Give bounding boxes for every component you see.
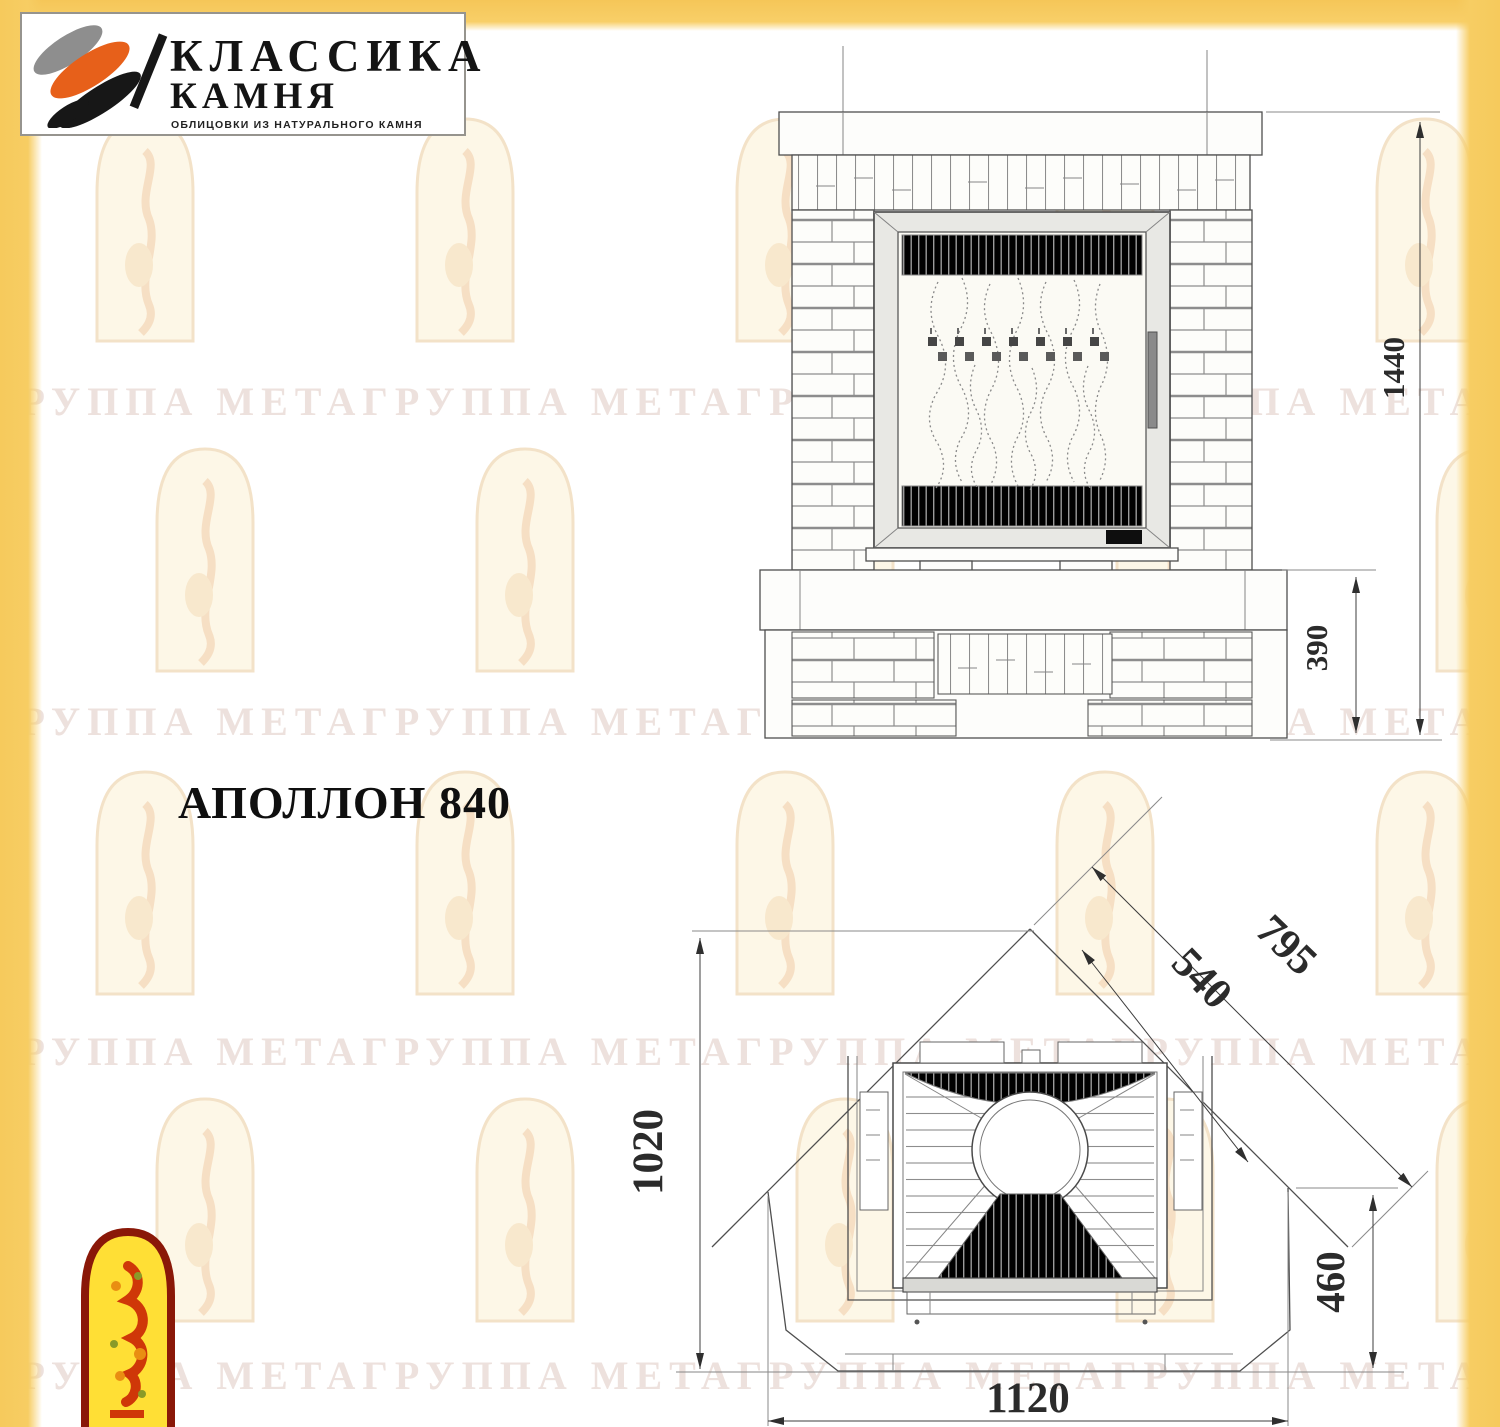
plan-view-drawing [676,929,1404,1372]
frieze-tiles [792,155,1250,210]
dim-label-540: 540 [1162,939,1241,1018]
dim-label-1120: 1120 [986,1375,1070,1422]
base-pedestal [765,630,1287,738]
logo-brushstroke-icon [28,22,168,128]
brand-badge [1106,530,1142,544]
side-bracket-right [1174,1092,1202,1210]
flue-collar-outer [972,1092,1088,1208]
dim-label-390: 390 [1299,625,1334,672]
brand-name-line2: КАМНЯ [170,78,339,115]
dim-label-795: 795 [1247,906,1326,985]
technical-drawing: 1440 390 1020 795 540 460 1120 [0,0,1500,1427]
mantel-shelf [779,112,1262,155]
rear-tab [920,1042,1004,1063]
bottom-grille [902,486,1142,526]
firebox-ledge [866,548,1178,561]
front-step-plan [907,1292,1155,1325]
firebox-front [874,212,1170,548]
front-view-drawing [760,46,1287,738]
door-handle [1148,332,1157,428]
brand-tagline: ОБЛИЦОВКИ ИЗ НАТУРАЛЬНОГО КАМНЯ [171,119,423,131]
right-brick-column [1170,210,1252,570]
front-sill-band [903,1278,1157,1292]
dim-label-460: 460 [1307,1251,1353,1313]
firebox-insert-plan [860,1042,1202,1325]
meta-emblem-icon [80,1224,190,1427]
side-bracket-left [860,1092,888,1210]
rear-tab [1058,1042,1142,1063]
dim-label-1020: 1020 [625,1109,672,1195]
chimney-lines [843,46,1207,112]
top-grille [902,235,1142,275]
left-brick-column [792,210,874,570]
brand-name-line1: КЛАССИКА [170,34,488,79]
rear-center-tab [1022,1050,1040,1063]
model-title: АПОЛЛОН 840 [178,776,511,829]
dim-label-1440: 1440 [1376,337,1411,399]
company-logo: КЛАССИКА КАМНЯ ОБЛИЦОВКИ ИЗ НАТУРАЛЬНОГО… [20,12,466,136]
hearth-shelf [760,570,1287,630]
page: ГРУППА МЕТАГРУППА МЕТАГРУППА МЕТАГРУППА … [0,0,1500,1427]
